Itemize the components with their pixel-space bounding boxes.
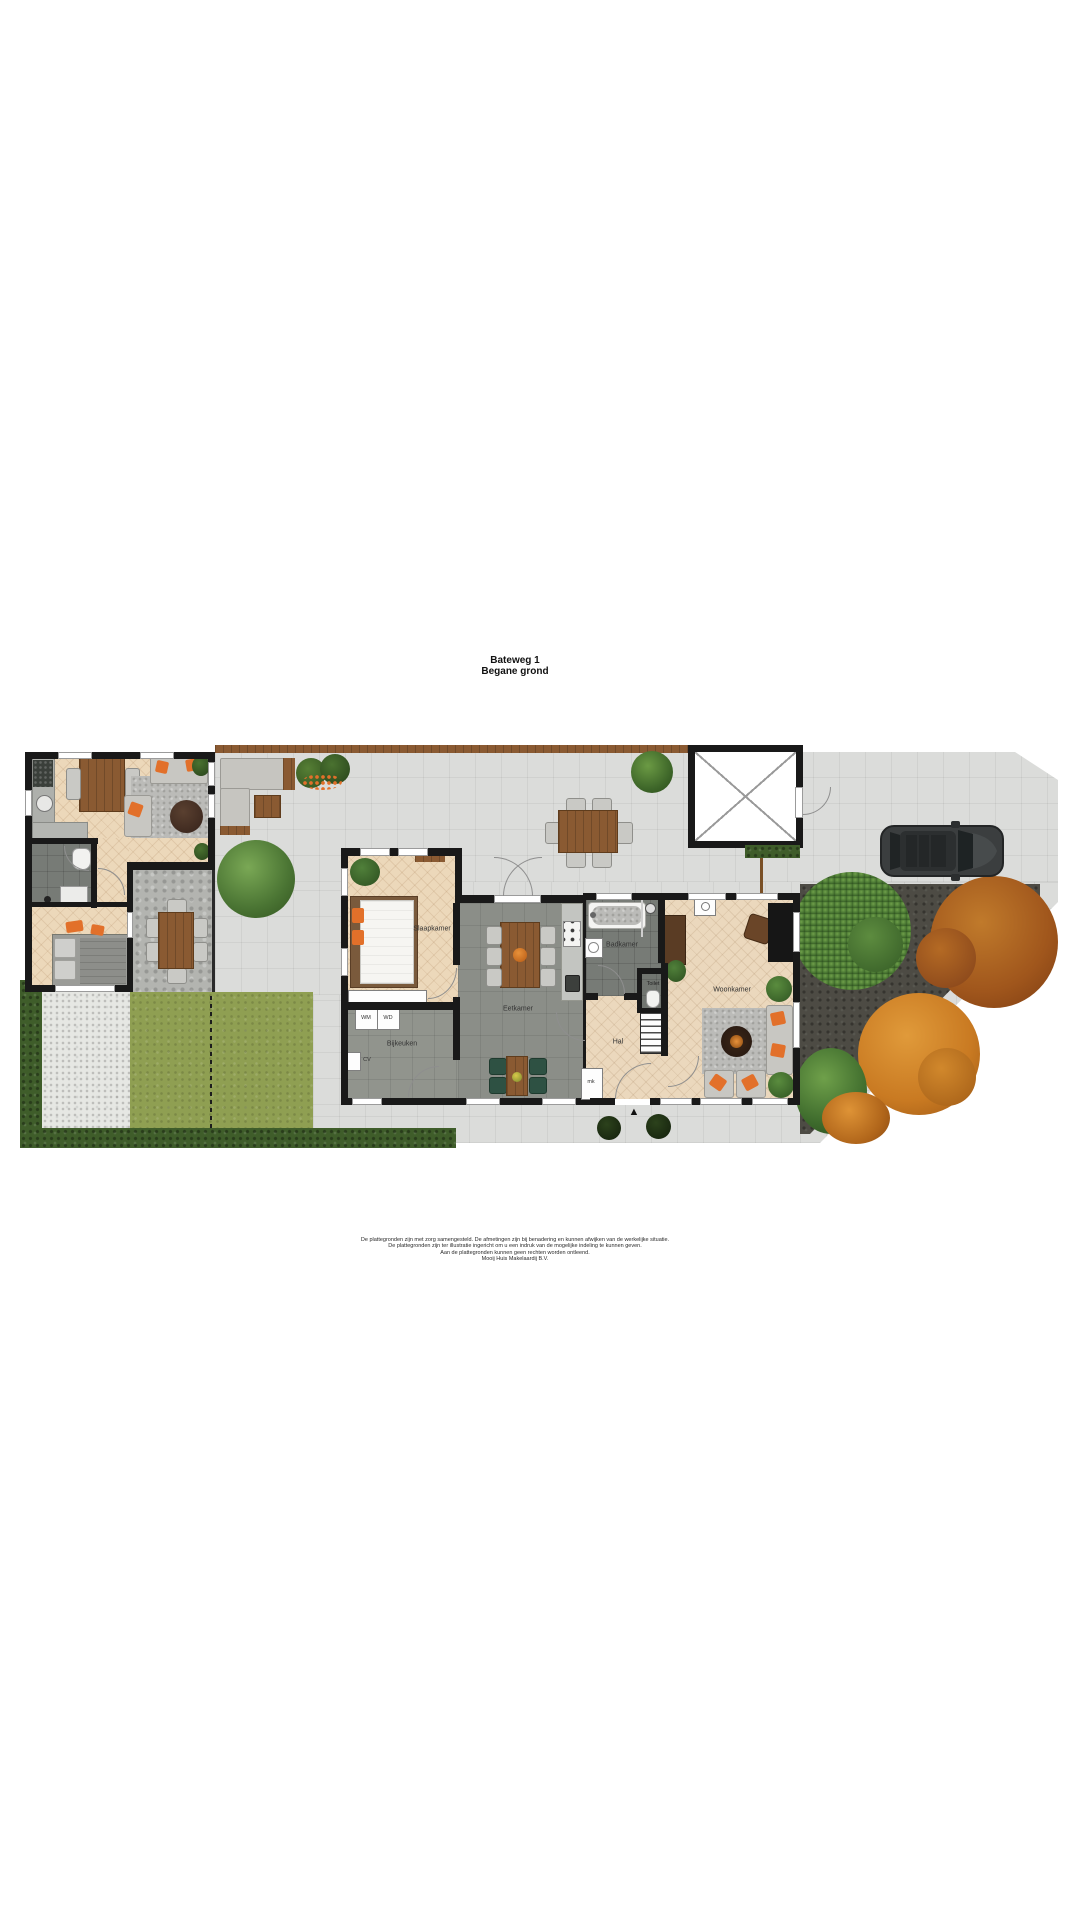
island-chair <box>486 968 502 987</box>
shower-head-icon <box>645 903 656 914</box>
wall <box>455 895 494 903</box>
window <box>688 893 726 900</box>
tree-canopy <box>848 917 903 972</box>
car-top-view <box>878 820 1006 882</box>
duvet <box>80 938 126 984</box>
orange-pillow <box>155 760 169 774</box>
hedge-garage <box>745 845 800 858</box>
green-chair <box>529 1077 547 1094</box>
pillow <box>54 960 76 980</box>
fruit-bowl <box>513 948 527 962</box>
coffee-table-round <box>170 800 203 833</box>
outdoor-chair <box>566 851 586 868</box>
wall <box>637 968 642 1012</box>
north-arrow-icon: ▲ <box>629 1106 640 1118</box>
wall <box>661 963 668 1056</box>
wall-fixture-knob <box>701 902 710 911</box>
disclaimer-line: Mooij Huis Makelaardij B.V. <box>280 1256 750 1262</box>
hedge-left <box>20 980 42 1148</box>
label-bijkeuken: Bijkeuken <box>387 1041 417 1048</box>
wall <box>25 838 98 844</box>
plant <box>768 1072 794 1098</box>
chair <box>66 768 81 800</box>
window <box>208 762 215 786</box>
title-floor: Begane grond <box>365 666 665 677</box>
flowers <box>512 1072 522 1082</box>
island-chair <box>486 947 502 966</box>
wall <box>590 1098 615 1105</box>
outdoor-chair <box>616 822 633 844</box>
orange-pillow <box>352 908 364 923</box>
window <box>466 1098 500 1105</box>
bed-duvet <box>360 900 414 984</box>
bathtub-interior <box>592 906 642 925</box>
window <box>793 1002 800 1048</box>
page-title: Bateweg 1 Begane grond <box>365 655 665 677</box>
label-slaapkamer: Slaapkamer <box>413 926 450 933</box>
disclaimer: De plattegronden zijn met zorg samengest… <box>280 1237 750 1263</box>
window <box>341 948 348 976</box>
dining-table <box>79 757 125 812</box>
label-wm: WM <box>361 1015 371 1021</box>
plant <box>766 976 792 1002</box>
label-cv: CV <box>363 1057 371 1063</box>
green-chair <box>529 1058 547 1075</box>
tree-canopy <box>217 840 295 918</box>
bathtub-faucet <box>590 912 596 918</box>
window <box>752 1098 788 1105</box>
paving-strip <box>313 995 343 1105</box>
wall <box>453 1010 460 1060</box>
outdoor-dining-table <box>558 810 618 853</box>
wall <box>25 752 215 759</box>
kitchen-sink <box>565 975 580 992</box>
wall <box>127 862 215 870</box>
island-chair <box>540 926 556 945</box>
tree-rust-large <box>930 876 1058 1008</box>
floorplan-page: Bateweg 1 Begane grond <box>0 0 1080 1920</box>
wall <box>583 993 598 1000</box>
green-chair <box>489 1058 507 1075</box>
window <box>127 912 133 938</box>
fence-beam <box>215 745 691 753</box>
label-toilet: Toilet <box>647 981 660 987</box>
label-wd: WD <box>383 1015 392 1021</box>
plant <box>350 858 380 886</box>
entrance-bush <box>646 1114 671 1139</box>
tree-orange-small <box>822 1092 890 1144</box>
lounge-coffee-table <box>254 795 281 818</box>
label-badkamer: Badkamer <box>606 942 638 949</box>
shower-glass <box>641 899 643 937</box>
toilet-bowl <box>646 990 660 1008</box>
window <box>55 985 115 992</box>
kitchenette-sink <box>36 795 53 812</box>
tree-canopy <box>918 1048 976 1106</box>
stove <box>563 921 581 947</box>
plant <box>666 960 686 982</box>
outdoor-chair <box>592 851 612 868</box>
window <box>352 1098 382 1105</box>
green-chair <box>489 1077 507 1094</box>
orange-mat <box>90 924 105 936</box>
tree-canopy <box>916 928 976 988</box>
tree-green-large <box>793 872 911 990</box>
lounge-sofa-wood-end <box>283 758 295 790</box>
window <box>793 912 800 952</box>
island-chair <box>486 926 502 945</box>
wall <box>346 1002 460 1010</box>
window <box>360 848 390 856</box>
window <box>341 868 348 896</box>
wall <box>91 838 97 908</box>
tree-canopy <box>822 1092 890 1144</box>
hedge-bottom <box>20 1128 456 1148</box>
label-eetkamer: Eetkamer <box>503 1006 533 1013</box>
window <box>58 752 92 759</box>
kitchenette-hob <box>33 760 53 787</box>
label-hal: Hal <box>613 1039 624 1046</box>
label-woonkamer: Woonkamer <box>713 987 751 994</box>
wall <box>25 902 133 907</box>
patio-chair <box>193 918 208 938</box>
window <box>25 790 32 816</box>
french-door-threshold <box>494 895 541 903</box>
courtyard-fence <box>212 868 215 992</box>
window <box>596 893 632 900</box>
fence-dashed <box>210 992 212 1128</box>
island-chair <box>540 968 556 987</box>
window <box>398 848 428 856</box>
cv-box <box>346 1052 361 1071</box>
garage-door-opening <box>795 787 803 818</box>
window <box>700 1098 742 1105</box>
tree-terrace <box>217 840 295 918</box>
window <box>140 752 174 759</box>
orange-pillow <box>770 1043 786 1058</box>
patio-chair <box>167 968 187 984</box>
island-chair <box>540 947 556 966</box>
window <box>660 1098 692 1105</box>
label-mk: mk <box>587 1079 594 1085</box>
orange-pillow <box>352 930 364 945</box>
window <box>542 1098 576 1105</box>
gravel-plot <box>42 992 130 1128</box>
window <box>208 794 215 818</box>
table-decor-orange <box>730 1035 743 1048</box>
orange-flowers <box>302 774 342 790</box>
fence-post <box>760 858 763 894</box>
garage <box>688 745 803 848</box>
window <box>736 893 778 900</box>
bush-terrace <box>631 751 673 793</box>
patio-chair <box>193 942 208 962</box>
patio-table <box>158 912 194 969</box>
wall <box>453 903 460 965</box>
bush <box>631 751 673 793</box>
car <box>878 820 1006 882</box>
black-cabinet <box>768 903 794 962</box>
planter-flowers <box>296 754 348 792</box>
shower-tray <box>60 886 88 903</box>
orange-mat <box>65 920 83 933</box>
title-address: Bateweg 1 <box>365 655 665 666</box>
pillow <box>54 938 76 958</box>
grass-plot <box>130 992 313 1128</box>
wall <box>25 752 32 992</box>
washbasin-bowl <box>588 942 599 953</box>
desk <box>664 915 686 965</box>
wall <box>658 893 665 963</box>
entrance-bush <box>597 1116 621 1140</box>
lounge-sofa-wood-end <box>220 826 250 835</box>
